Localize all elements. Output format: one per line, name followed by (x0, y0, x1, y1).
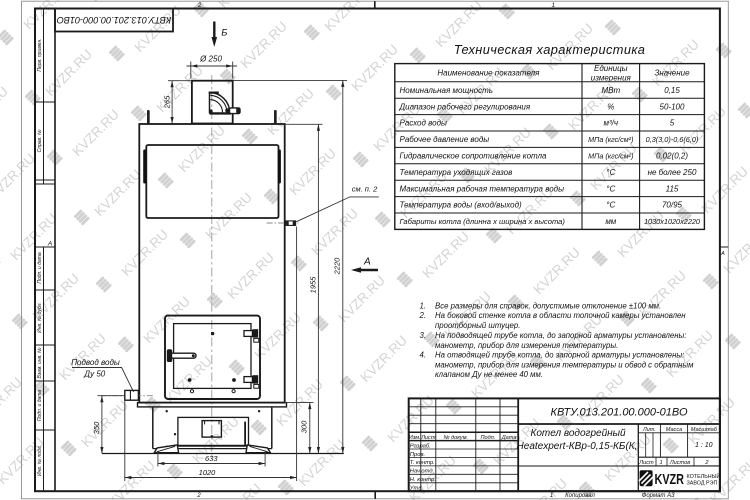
svg-text:измерения: измерения (591, 73, 632, 82)
svg-text:КОТЕЛЬНЫЙ: КОТЕЛЬНЫЙ (687, 472, 721, 480)
svg-text:Лист: Лист (420, 435, 436, 441)
svg-text:0,3(3,0)-0,6(6,0): 0,3(3,0)-0,6(6,0) (646, 135, 699, 144)
svg-text:На отводящей трубе котла, до з: На отводящей трубе котла, до запорной ар… (435, 351, 684, 360)
svg-text:KVZR.RU: KVZR.RU (309, 206, 362, 259)
svg-text:70/95: 70/95 (662, 201, 683, 210)
svg-text:Котел водогрейный: Котел водогрейный (530, 428, 626, 439)
svg-text:KVZR.RU: KVZR.RU (203, 190, 256, 243)
svg-text:KVZR.RU: KVZR.RU (141, 294, 194, 347)
svg-text:МВт: МВт (601, 86, 620, 95)
svg-text:Лист: Лист (638, 460, 654, 466)
svg-text:Разраб.: Разраб. (410, 443, 431, 449)
svg-text:0,15: 0,15 (664, 86, 680, 95)
svg-text:Значение: Значение (654, 69, 690, 78)
svg-text:KVZR.RU: KVZR.RU (650, 37, 703, 90)
svg-text:Т. контр.: Т. контр. (410, 460, 435, 466)
svg-text:Изм.: Изм. (409, 435, 421, 441)
svg-text:1: 1 (550, 493, 553, 499)
svg-text:Диапазон рабочего регулировани: Диапазон рабочего регулирования (399, 102, 531, 111)
svg-text:265: 265 (162, 95, 171, 109)
svg-text:не более 250: не более 250 (648, 168, 697, 177)
svg-text:4.: 4. (419, 351, 426, 360)
svg-text:Температура уходящих газов: Температура уходящих газов (400, 168, 513, 177)
svg-text:KVZR.RU: KVZR.RU (79, 398, 132, 451)
svg-text:КВТУ.013.201.00.000-01ВО: КВТУ.013.201.00.000-01ВО (550, 406, 687, 418)
svg-text:А: А (363, 257, 371, 268)
svg-text:°С: °С (606, 184, 615, 193)
svg-text:KVZR.RU: KVZR.RU (615, 208, 668, 261)
svg-text:1030х1020х2220: 1030х1020х2220 (644, 217, 700, 226)
svg-text:Подп.: Подп. (480, 435, 495, 441)
svg-text:Heatexpert-КВр-0,15-КБ(К,: Heatexpert-КВр-0,15-КБ(К, (517, 441, 638, 452)
svg-text:Габариты котла (длинна х ширин: Габариты котла (длинна х ширина х высота… (400, 217, 566, 226)
svg-text:0,02(0,2): 0,02(0,2) (656, 152, 688, 161)
svg-text:Формат А3: Формат А3 (642, 493, 675, 499)
svg-text:проотборный штуцер.: проотборный штуцер. (435, 321, 520, 330)
svg-text:Пров.: Пров. (410, 452, 425, 458)
svg-text:Взам. инв. №: Взам. инв. № (37, 347, 43, 379)
svg-text:1020: 1020 (199, 468, 217, 477)
svg-text:KVZR.RU: KVZR.RU (92, 167, 145, 220)
svg-text:KVZR.RU: KVZR.RU (420, 229, 473, 282)
svg-text:2: 2 (704, 460, 709, 466)
svg-text:Масштаб: Масштаб (691, 427, 718, 433)
svg-text:1: 1 (659, 460, 662, 466)
svg-text:5: 5 (670, 119, 675, 128)
svg-text:KVZR.RU: KVZR.RU (686, 395, 739, 448)
svg-text:KVZR.RU: KVZR.RU (70, 107, 123, 160)
svg-text:KVZR.RU: KVZR.RU (296, 437, 349, 490)
svg-text:Техническая характеристика: Техническая характеристика (454, 42, 646, 57)
svg-text:Дата: Дата (501, 435, 517, 441)
svg-text:Подп. и дата: Подп. и дата (37, 252, 43, 284)
svg-text:Температура воды (вход/выход): Температура воды (вход/выход) (400, 201, 522, 210)
svg-text:1: 1 (552, 3, 555, 9)
svg-text:см. п. 2: см. п. 2 (352, 185, 378, 194)
svg-text:МПа (кгс/см²): МПа (кгс/см²) (588, 152, 633, 161)
svg-text:Б: Б (221, 28, 227, 39)
svg-text:Листов: Листов (669, 460, 690, 466)
svg-text:Справ. №: Справ. № (37, 129, 43, 152)
svg-text:KVZR.RU: KVZR.RU (8, 211, 61, 264)
svg-text:Перв. примен.: Перв. примен. (37, 38, 43, 71)
svg-text:KVZR.RU: KVZR.RU (119, 227, 172, 280)
svg-text:KVZR: KVZR (655, 472, 685, 488)
svg-text:мм: мм (605, 217, 616, 226)
svg-text:МПа (кгс/см²): МПа (кгс/см²) (588, 135, 633, 144)
svg-text:клапаном Ду не менее 40 мм.: клапаном Ду не менее 40 мм. (435, 370, 543, 379)
svg-text:Наименование показателя: Наименование показателя (437, 69, 540, 78)
svg-text:KVZR.RU: KVZR.RU (349, 42, 402, 95)
svg-text:Гидравлическое сопротивление к: Гидравлическое сопротивление котла (400, 152, 548, 161)
svg-text:KVZR.RU: KVZR.RU (225, 250, 278, 303)
svg-text:Все размеры для справок, допус: Все размеры для справок, допустимые откл… (435, 301, 661, 310)
svg-text:А: А (720, 251, 725, 257)
svg-text:Масса: Масса (666, 427, 683, 433)
svg-text:На подводящей трубе котла, до: На подводящей трубе котла, до запорной а… (435, 331, 686, 340)
svg-text:KVZR.RU: KVZR.RU (322, 0, 375, 34)
svg-text:Утв.: Утв. (409, 485, 423, 491)
svg-text:115: 115 (666, 184, 679, 193)
svg-text:Подп. и дата: Подп. и дата (37, 390, 43, 422)
svg-text:2220: 2220 (333, 257, 342, 276)
svg-text:2: 2 (196, 493, 201, 499)
svg-text:Н. контр.: Н. контр. (410, 477, 436, 483)
svg-text:2.: 2. (418, 311, 426, 320)
svg-text:KVZR.RU: KVZR.RU (106, 458, 159, 500)
svg-text:2: 2 (197, 3, 202, 9)
svg-text:KVZR.RU: KVZR.RU (0, 151, 38, 204)
svg-text:А: А (47, 241, 52, 248)
svg-text:№ докум.: № докум. (443, 435, 468, 441)
svg-text:50-100: 50-100 (660, 102, 685, 111)
svg-text:Копировал: Копировал (565, 493, 595, 499)
svg-text:Инв. № дубл.: Инв. № дубл. (37, 302, 43, 333)
svg-text:KVZR.RU: KVZR.RU (287, 146, 340, 199)
svg-text:1.: 1. (419, 301, 426, 310)
svg-text:KVZR.RU: KVZR.RU (132, 3, 185, 56)
svg-text:Единицы: Единицы (594, 64, 628, 73)
svg-text:350: 350 (92, 421, 101, 434)
svg-text:Рабочее давление воды: Рабочее давление воды (400, 135, 490, 144)
svg-text:Ø 250: Ø 250 (199, 54, 222, 63)
svg-text:манометр, прибор для измерения: манометр, прибор для измерения температу… (435, 361, 694, 370)
svg-text:3.: 3. (419, 331, 426, 340)
svg-text:KVZR.RU: KVZR.RU (677, 104, 730, 157)
svg-text:°С: °С (606, 201, 615, 210)
svg-text:°С: °С (606, 168, 615, 177)
svg-text:Лит.: Лит. (642, 427, 656, 433)
svg-text:KVZR.RU: KVZR.RU (176, 123, 229, 176)
svg-text:Инв. № подл.: Инв. № подл. (37, 445, 43, 476)
svg-text:Максимальная рабочая температу: Максимальная рабочая температура воды (400, 184, 565, 193)
svg-text:Расход воды: Расход воды (400, 119, 447, 128)
svg-text:KVZR.RU: KVZR.RU (336, 273, 389, 326)
svg-text:KVZR.RU: KVZR.RU (0, 84, 11, 137)
svg-text:KVZR.RU: KVZR.RU (238, 19, 291, 72)
svg-text:KVZR.RU: KVZR.RU (699, 164, 750, 217)
svg-text:Ду 50: Ду 50 (83, 370, 105, 379)
svg-text:КВТУ.013.201.00.000-01ВО: КВТУ.013.201.00.000-01ВО (57, 15, 171, 25)
svg-text:м³/ч: м³/ч (604, 119, 619, 128)
svg-text:KVZR.RU: KVZR.RU (358, 333, 411, 386)
svg-text:300: 300 (300, 420, 309, 433)
svg-text:633: 633 (205, 454, 218, 463)
svg-text:Подвод воды: Подвод воды (71, 358, 120, 367)
svg-text:1 : 10: 1 : 10 (695, 442, 713, 449)
svg-text:KVZR.RU: KVZR.RU (43, 47, 96, 100)
svg-text:ЗАВОД РЭП: ЗАВОД РЭП (687, 481, 718, 487)
svg-text:Нач.отд.: Нач.отд. (410, 469, 434, 475)
svg-text:KVZR.RU: KVZR.RU (265, 86, 318, 139)
svg-text:На боковой стенке котла в обла: На боковой стенке котла в области топочн… (435, 311, 686, 320)
svg-text:KVZR.RU: KVZR.RU (518, 476, 571, 500)
svg-text:KVZR.RU: KVZR.RU (531, 245, 584, 298)
svg-text:Номинальная мощность: Номинальная мощность (400, 86, 493, 95)
svg-text:1955: 1955 (308, 276, 317, 294)
svg-text:KVZR.RU: KVZR.RU (721, 224, 750, 277)
svg-text:%: % (607, 102, 614, 111)
svg-text:манометр, прибор для измерения: манометр, прибор для измерения температу… (435, 341, 618, 350)
